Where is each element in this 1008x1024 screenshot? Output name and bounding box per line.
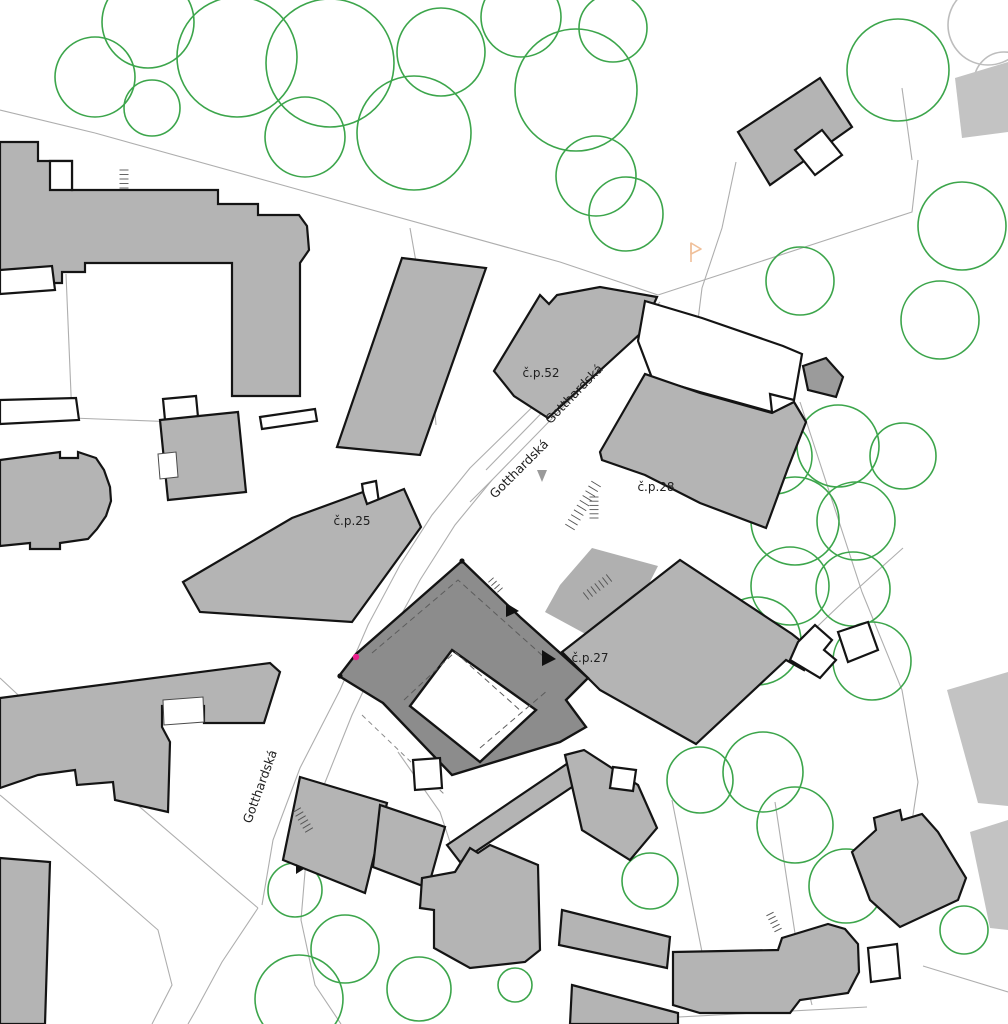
survey-point-magenta (353, 654, 359, 660)
tree-icon (124, 80, 180, 136)
tree-gray-icon (948, 0, 1008, 65)
survey-point-black-1 (337, 673, 342, 678)
stairs-bottomright-step (770, 920, 777, 924)
building-bottomright-strip2 (570, 985, 678, 1024)
road-parcel-bottom-c (923, 966, 1008, 992)
tree-icon (265, 97, 345, 177)
road-upper-right-boundary (658, 160, 918, 295)
building-cp28 (600, 374, 806, 528)
road-parcel-topright (902, 88, 912, 160)
stairs-bottomright-step (768, 916, 775, 920)
tree-icon (266, 0, 394, 127)
tree-icon (589, 177, 663, 251)
building-flat-right-low (970, 820, 1008, 930)
site-plan-canvas: č.p.52GotthardskáGotthardskáč.p.28č.p.25… (0, 0, 1008, 1024)
stairs-courtyard-step (488, 578, 493, 583)
building-white-left-b (0, 398, 79, 424)
building-small-white-rect (838, 622, 878, 662)
building-bottomleft-big (0, 663, 280, 812)
building-bottommid-wing (565, 750, 657, 860)
street-triangle-gray (537, 470, 547, 482)
building-bottomright-white-sq (868, 944, 900, 982)
tree-icon (622, 853, 678, 909)
stairs-street-ramp-step (574, 510, 583, 516)
site-plan: č.p.52GotthardskáGotthardskáč.p.28č.p.25… (0, 0, 1008, 1024)
building-white-small-center (413, 758, 442, 790)
tree-icon (255, 955, 343, 1024)
tree-icon (723, 732, 803, 812)
tree-icon (817, 482, 895, 560)
road-hook-path (698, 162, 736, 320)
stairs-street-ramp-step (583, 495, 592, 501)
building-church (0, 452, 111, 549)
tree-icon (751, 547, 829, 625)
stairs-street-ramp-step (565, 524, 574, 530)
stairs-courtyard-step (497, 588, 502, 593)
road-junction-c (188, 908, 258, 1024)
building-bottommid-big (420, 845, 540, 968)
stairs-bottomright-step (774, 928, 781, 932)
tree-icon (847, 19, 949, 121)
building-parallelogram (337, 258, 486, 455)
label-cp25: č.p.25 (333, 514, 370, 528)
tree-icon (766, 247, 834, 315)
tree-icon (102, 0, 194, 68)
tree-icon (55, 37, 135, 117)
tree-icon (311, 915, 379, 983)
building-bottomleft-rect (0, 858, 50, 1024)
tree-icon (918, 182, 1006, 270)
stairs-street-ramp-step (586, 491, 595, 497)
label-cp52: č.p.52 (522, 366, 559, 380)
tree-icon (481, 0, 561, 57)
tree-icon (357, 76, 471, 190)
building-cp28-dark-annex (803, 358, 843, 397)
tree-icon (177, 0, 297, 117)
tree-icon (498, 968, 532, 1002)
road-parcel-bottom-a (672, 800, 702, 952)
building-project-dark-u (339, 561, 588, 775)
stairs-courtyard-step (494, 584, 499, 589)
label-street-gotthardska-lower: Gotthardská (240, 748, 280, 825)
building-small-white-L (790, 625, 836, 678)
building-flat-topright (955, 62, 1008, 138)
road-top-boundary-ext (0, 110, 95, 133)
stairs-street-ramp-step (580, 500, 589, 506)
stairs-bottomright-step (772, 924, 779, 928)
label-cp28: č.p.28 (637, 480, 674, 494)
building-cp25 (183, 489, 421, 622)
tree-icon (870, 423, 936, 489)
flag-marker-pennant (691, 243, 701, 254)
tree-icon (940, 906, 988, 954)
building-white-left-a (0, 266, 55, 294)
building-topright (738, 78, 852, 185)
notch-square-building (158, 452, 178, 479)
tree-icon (387, 957, 451, 1021)
building-white-row-small (260, 409, 317, 429)
tree-icon (515, 29, 637, 151)
tree-icon (757, 787, 833, 863)
survey-point-black-2 (459, 558, 464, 563)
label-cp27: č.p.27 (571, 651, 608, 665)
building-flat-right-mid (947, 672, 1008, 806)
building-bottomright-chain (673, 924, 859, 1013)
building-bottommid-a (283, 777, 387, 893)
building-bottomright-strip1 (559, 910, 670, 968)
label-street-gotthardska-middle: Gotthardská (486, 436, 551, 501)
building-topleft-white-annex (50, 161, 72, 190)
building-bottommid-wing-white (610, 767, 636, 791)
stairs-courtyard-step (491, 581, 496, 586)
stairs-street-ramp-step (591, 481, 600, 487)
stairs-street-ramp-step (571, 515, 580, 521)
stairs-bottomright-step (766, 912, 773, 916)
tree-icon (901, 281, 979, 359)
tree-icon (797, 405, 879, 487)
stairs-street-ramp-step (568, 519, 577, 525)
road-courtyard-topleft (66, 274, 230, 424)
notch-bottomleft-big (163, 697, 204, 725)
stairs-street-ramp-step (588, 486, 597, 492)
stairs-street-ramp-step (577, 505, 586, 511)
building-bottomright-big (852, 810, 966, 927)
